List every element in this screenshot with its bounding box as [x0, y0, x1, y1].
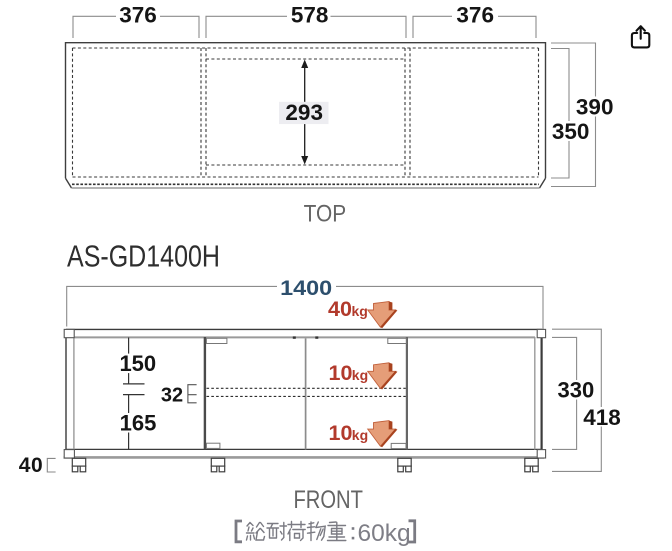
svg-text:AS-GD1400H: AS-GD1400H: [67, 240, 220, 274]
svg-text:TOP: TOP: [304, 201, 347, 228]
svg-text:150: 150: [119, 351, 156, 376]
svg-text:165: 165: [120, 411, 157, 436]
svg-text:kg: kg: [352, 367, 368, 383]
svg-text:350: 350: [552, 119, 590, 144]
svg-text:32: 32: [161, 384, 183, 406]
svg-text:1400: 1400: [280, 277, 332, 300]
svg-text:60kg: 60kg: [358, 520, 411, 547]
svg-text:293: 293: [285, 100, 323, 125]
svg-text:418: 418: [583, 405, 621, 430]
svg-text:kg: kg: [352, 427, 368, 443]
svg-text:330: 330: [558, 378, 595, 403]
svg-text:376: 376: [456, 3, 494, 28]
svg-text:390: 390: [576, 95, 614, 120]
svg-text:40: 40: [328, 297, 352, 321]
svg-text:kg: kg: [352, 303, 368, 319]
svg-text:40: 40: [19, 454, 44, 477]
svg-text:578: 578: [291, 3, 329, 28]
svg-text:FRONT: FRONT: [293, 486, 363, 514]
svg-text:10: 10: [329, 421, 353, 445]
svg-text:10: 10: [329, 361, 353, 385]
svg-text:376: 376: [119, 3, 157, 28]
